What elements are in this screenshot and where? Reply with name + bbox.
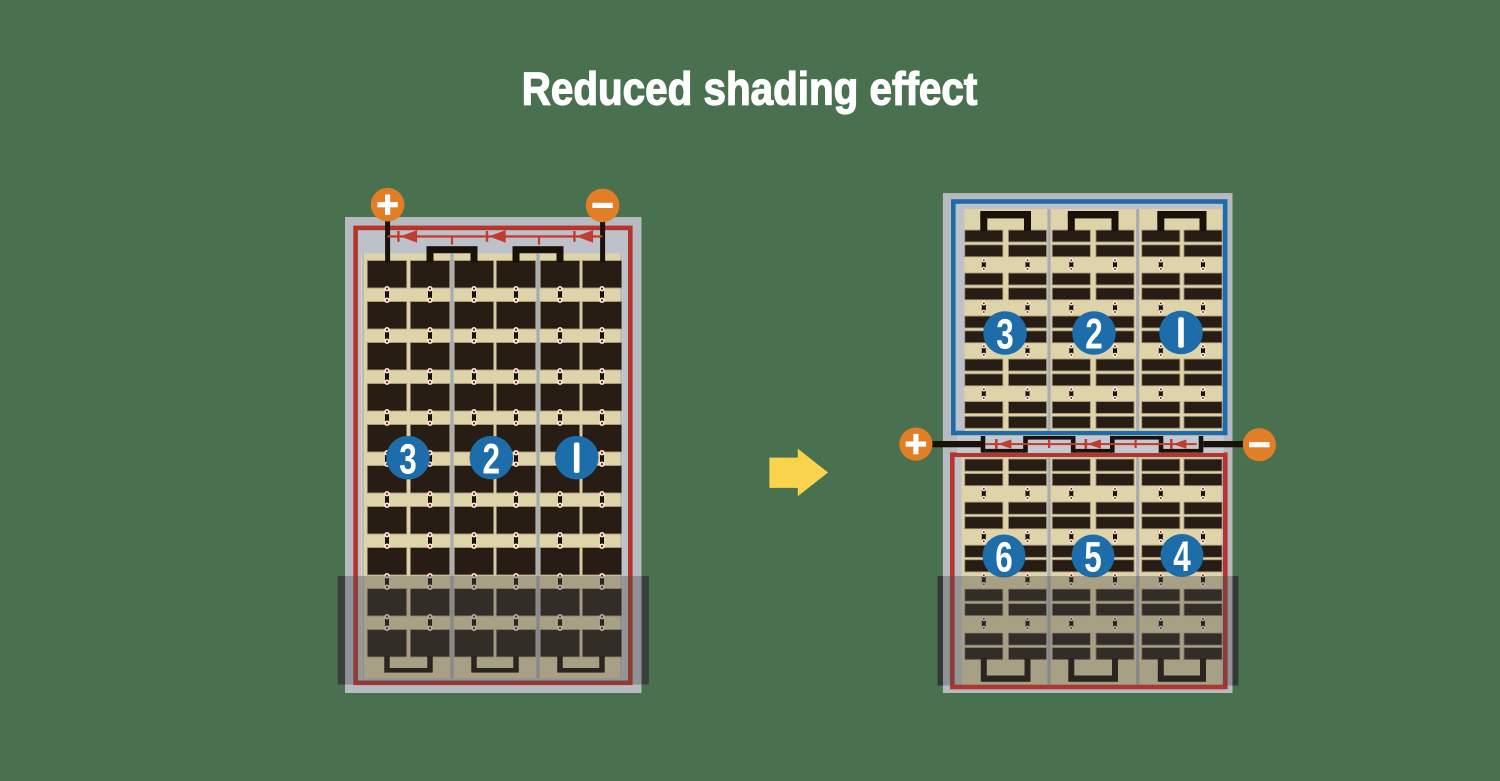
svg-text:6: 6 xyxy=(995,534,1013,582)
svg-text:4: 4 xyxy=(1173,533,1191,581)
svg-text:2: 2 xyxy=(483,435,501,483)
svg-text:3: 3 xyxy=(399,435,417,483)
svg-text:2: 2 xyxy=(1085,311,1103,359)
svg-text:5: 5 xyxy=(1084,534,1102,582)
svg-text:3: 3 xyxy=(996,311,1014,359)
svg-text:Reduced shading effect: Reduced shading effect xyxy=(522,62,978,114)
